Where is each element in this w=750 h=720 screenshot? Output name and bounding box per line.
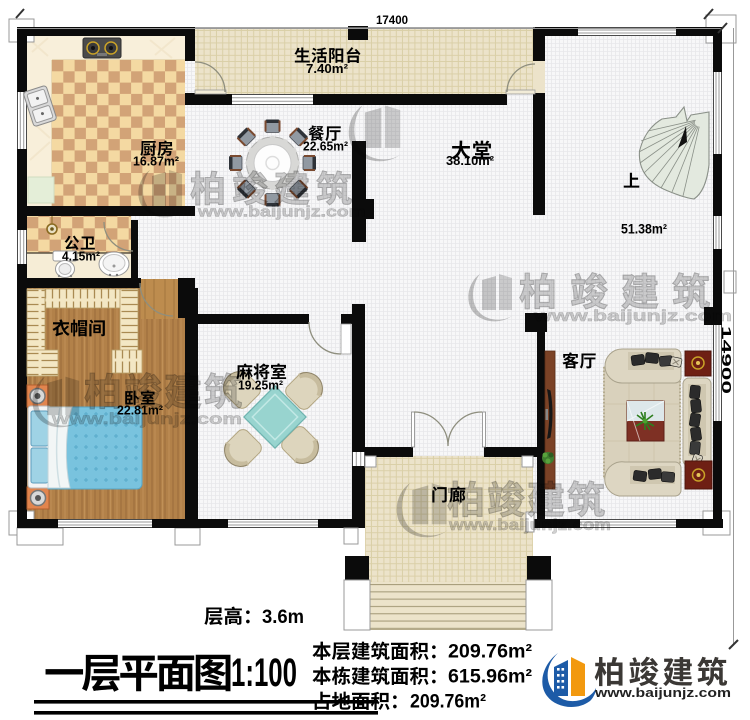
svg-text:51.38m²: 51.38m² bbox=[621, 221, 667, 236]
svg-text:www.baijunjz.com: www.baijunjz.com bbox=[533, 308, 732, 325]
svg-text:17400: 17400 bbox=[376, 15, 408, 27]
svg-text:38.10m²: 38.10m² bbox=[446, 153, 495, 168]
svg-text:3.6m: 3.6m bbox=[262, 606, 304, 628]
svg-text:4.15m²: 4.15m² bbox=[62, 250, 100, 264]
svg-text:22.65m²: 22.65m² bbox=[303, 140, 348, 154]
svg-text:22.81m²: 22.81m² bbox=[117, 404, 163, 418]
svg-text:615.96m²: 615.96m² bbox=[448, 667, 532, 688]
svg-text:16.87m²: 16.87m² bbox=[133, 155, 179, 169]
svg-text:1:100: 1:100 bbox=[231, 651, 297, 695]
svg-text:7.40m²: 7.40m² bbox=[306, 61, 349, 76]
svg-text:www.baijunjz.com: www.baijunjz.com bbox=[594, 685, 731, 700]
svg-text:19.25m²: 19.25m² bbox=[238, 379, 283, 393]
svg-text:14900: 14900 bbox=[719, 326, 733, 394]
svg-text:209.76m²: 209.76m² bbox=[410, 692, 486, 713]
svg-text:www.baijunjz.com: www.baijunjz.com bbox=[448, 517, 611, 534]
svg-text:209.76m²: 209.76m² bbox=[448, 642, 532, 663]
svg-text:www.baijunjz.com: www.baijunjz.com bbox=[197, 204, 366, 221]
